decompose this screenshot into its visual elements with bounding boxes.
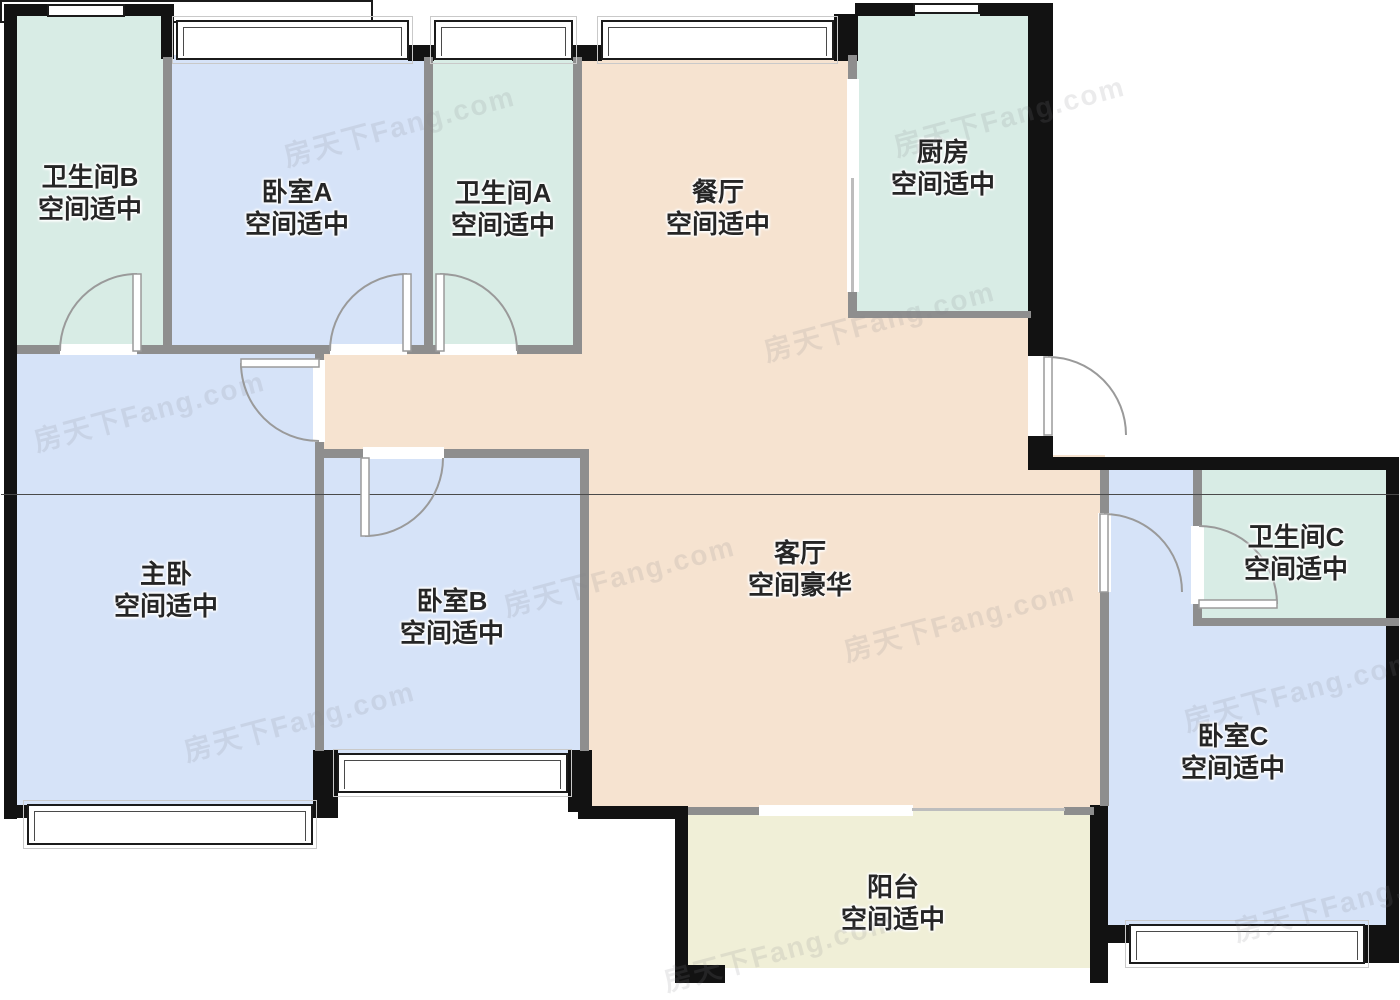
room-name: 卫生间B <box>38 161 142 193</box>
room-quality: 空间适中 <box>666 208 770 240</box>
door-leaf-bathroom-c <box>1199 600 1277 608</box>
room-label-bathroom-a: 卫生间A 空间适中 <box>451 177 555 241</box>
room-label-master-bedroom: 主卧 空间适中 <box>114 558 218 622</box>
door-arc-bathroom-b <box>60 274 137 351</box>
door-leaf-bedroom-c <box>1100 514 1108 592</box>
room-label-bedroom-a: 卧室A 空间适中 <box>245 176 349 240</box>
floor-plan: 卫生间B 空间适中 卧室A 空间适中 卫生间A 空间适中 餐厅 空间适中 厨房 … <box>0 0 1400 987</box>
room-name: 阳台 <box>841 871 945 903</box>
room-name: 卧室A <box>245 176 349 208</box>
door-leaf-bedroom-a <box>403 274 411 351</box>
door-arc-bathroom-a <box>440 274 517 351</box>
room-quality: 空间适中 <box>891 168 995 200</box>
room-name: 卧室C <box>1181 720 1285 752</box>
room-label-dining-room: 餐厅 空间适中 <box>666 176 770 240</box>
room-name: 主卧 <box>114 558 218 590</box>
door-arc-bedroom-a <box>330 274 407 351</box>
door-arc-entry <box>1048 357 1126 435</box>
room-quality: 空间豪华 <box>748 569 852 601</box>
room-label-balcony: 阳台 空间适中 <box>841 871 945 935</box>
room-quality: 空间适中 <box>1181 752 1285 784</box>
room-quality: 空间适中 <box>841 903 945 935</box>
room-label-bathroom-b: 卫生间B 空间适中 <box>38 161 142 225</box>
door-leaf-bathroom-a <box>436 274 444 351</box>
door-leaf-master-bedroom <box>241 359 319 367</box>
room-quality: 空间适中 <box>1244 553 1348 585</box>
room-quality: 空间适中 <box>245 208 349 240</box>
room-name: 卫生间A <box>451 177 555 209</box>
room-label-kitchen: 厨房 空间适中 <box>891 136 995 200</box>
door-leaf-entry <box>1044 357 1052 435</box>
door-arc-master-bedroom <box>241 363 319 441</box>
door-arc-bedroom-c <box>1104 514 1182 592</box>
room-quality: 空间适中 <box>38 193 142 225</box>
room-name: 餐厅 <box>666 176 770 208</box>
room-quality: 空间适中 <box>400 617 504 649</box>
door-leaf-bathroom-b <box>133 274 141 351</box>
room-label-bedroom-c: 卧室C 空间适中 <box>1181 720 1285 784</box>
door-arc-bedroom-b <box>365 458 443 536</box>
room-label-living-room: 客厅 空间豪华 <box>748 537 852 601</box>
room-quality: 空间适中 <box>451 209 555 241</box>
door-layer <box>0 0 1400 987</box>
room-name: 厨房 <box>891 136 995 168</box>
room-label-bedroom-b: 卧室B 空间适中 <box>400 585 504 649</box>
room-name: 客厅 <box>748 537 852 569</box>
room-name: 卫生间C <box>1244 521 1348 553</box>
room-label-bathroom-c: 卫生间C 空间适中 <box>1244 521 1348 585</box>
door-leaf-bedroom-b <box>361 458 369 536</box>
room-quality: 空间适中 <box>114 590 218 622</box>
room-name: 卧室B <box>400 585 504 617</box>
